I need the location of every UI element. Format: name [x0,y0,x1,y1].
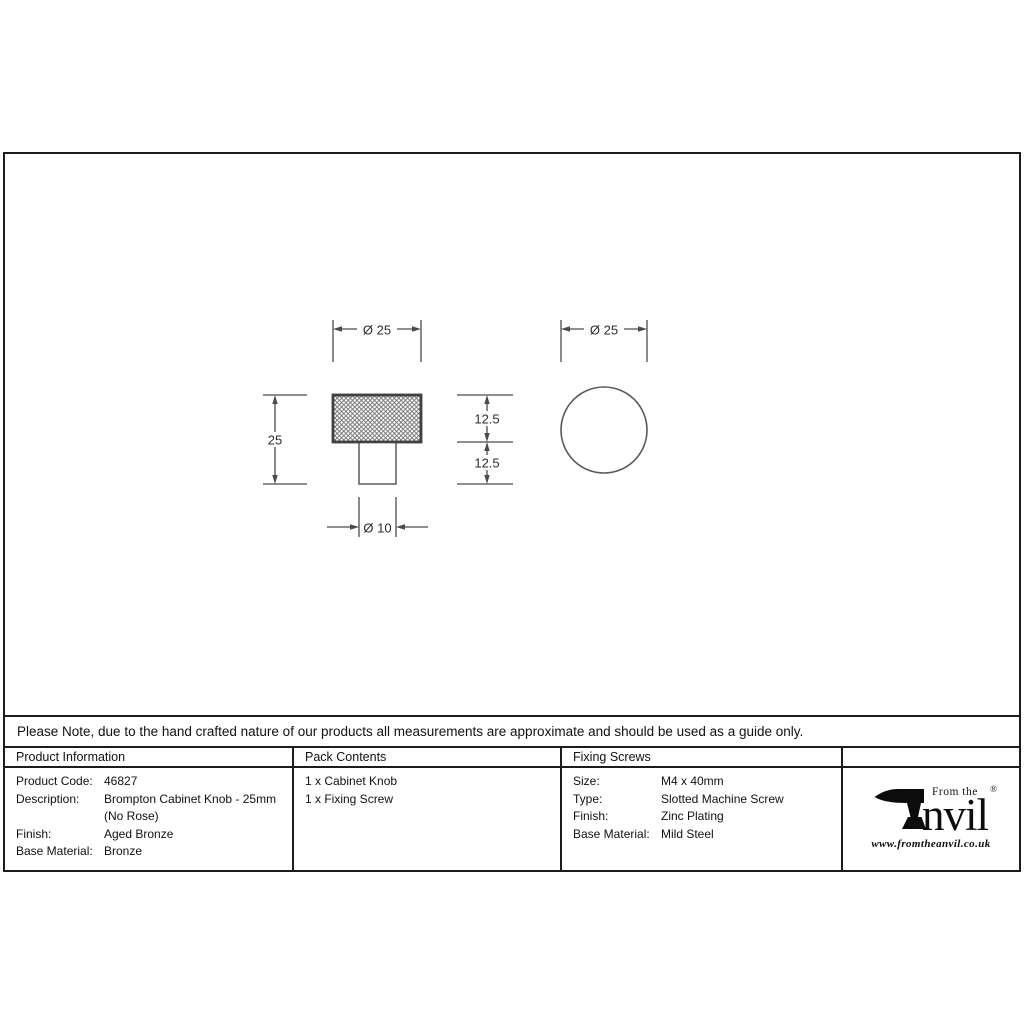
spec-label: Base Material: [573,826,661,844]
spec-label: Description: [16,791,104,809]
side-view: Ø 25 [561,320,647,473]
fixing-screws-header: Fixing Screws [562,748,843,766]
spec-value: Mild Steel [661,826,833,844]
dimension-label-stem-height: 12.5 [474,456,499,471]
table-body-row: Product Code: 46827 Description: Brompto… [5,768,1019,870]
technical-drawing-area: Ø 25 25 [5,154,1019,715]
dimension-label-side-diameter: Ø 25 [590,323,618,338]
product-information-cell: Product Code: 46827 Description: Brompto… [5,768,294,870]
table-header-row: Product Information Pack Contents Fixing… [5,748,1019,768]
knob-head [333,395,421,442]
spec-label: Base Material: [16,843,104,861]
technical-drawing: Ø 25 25 [5,154,1019,715]
logo-header-cell [843,748,1019,766]
spec-value: Bronze [104,843,284,861]
spec-value: Slotted Machine Screw [661,791,833,809]
spec-label: Size: [573,773,661,791]
anvil-logo: From the nvil ® www.fromtheanvil.co.uk [871,784,990,853]
dimension-label-overall-height: 25 [268,433,282,448]
dimension-label-head-diameter: Ø 25 [363,323,391,338]
measurement-note: Please Note, due to the hand crafted nat… [5,715,1019,746]
dimension-head-stem-heights [457,395,513,484]
pack-item: 1 x Fixing Screw [305,791,552,809]
fixing-screws-cell: Size: M4 x 40mm Type: Slotted Machine Sc… [562,768,843,870]
spec-row: Base Material: Mild Steel [573,826,833,844]
spec-value: 46827 [104,773,284,791]
spec-value: Aged Bronze [104,826,284,844]
pack-item: 1 x Cabinet Knob [305,773,552,791]
spec-row: (No Rose) [16,808,284,826]
spec-label: Type: [573,791,661,809]
spec-value: Brompton Cabinet Knob - 25mm [104,791,284,809]
spec-row: Product Code: 46827 [16,773,284,791]
dimension-label-head-height: 12.5 [474,412,499,427]
spec-label [16,808,104,826]
dimension-label-stem-diameter: Ø 10 [363,521,391,536]
pack-contents-header: Pack Contents [294,748,562,766]
spec-value: M4 x 40mm [661,773,833,791]
knob-stem [359,442,396,484]
spec-row: Type: Slotted Machine Screw [573,791,833,809]
spec-table: Product Information Pack Contents Fixing… [5,746,1019,870]
registered-trademark-icon: ® [990,781,997,799]
pack-contents-cell: 1 x Cabinet Knob 1 x Fixing Screw [294,768,562,870]
spec-row: Size: M4 x 40mm [573,773,833,791]
spec-row: Finish: Aged Bronze [16,826,284,844]
anvil-wordmark: From the nvil ® [874,784,988,833]
knob-face-circle [561,387,647,473]
spec-value: (No Rose) [104,808,284,826]
logo-cell: From the nvil ® www.fromtheanvil.co.uk [843,768,1019,870]
measurement-note-text: Please Note, due to the hand crafted nat… [17,724,803,739]
spec-label: Finish: [16,826,104,844]
spec-label: Finish: [573,808,661,826]
anvil-icon [874,787,926,833]
spec-value: Zinc Plating [661,808,833,826]
spec-sheet: Ø 25 25 [3,152,1021,872]
product-information-header: Product Information [5,748,294,766]
spec-row: Base Material: Bronze [16,843,284,861]
spec-row: Description: Brompton Cabinet Knob - 25m… [16,791,284,809]
front-view: Ø 25 25 [263,320,513,537]
spec-row: Finish: Zinc Plating [573,808,833,826]
logo-word: nvil [922,798,988,832]
spec-label: Product Code: [16,773,104,791]
